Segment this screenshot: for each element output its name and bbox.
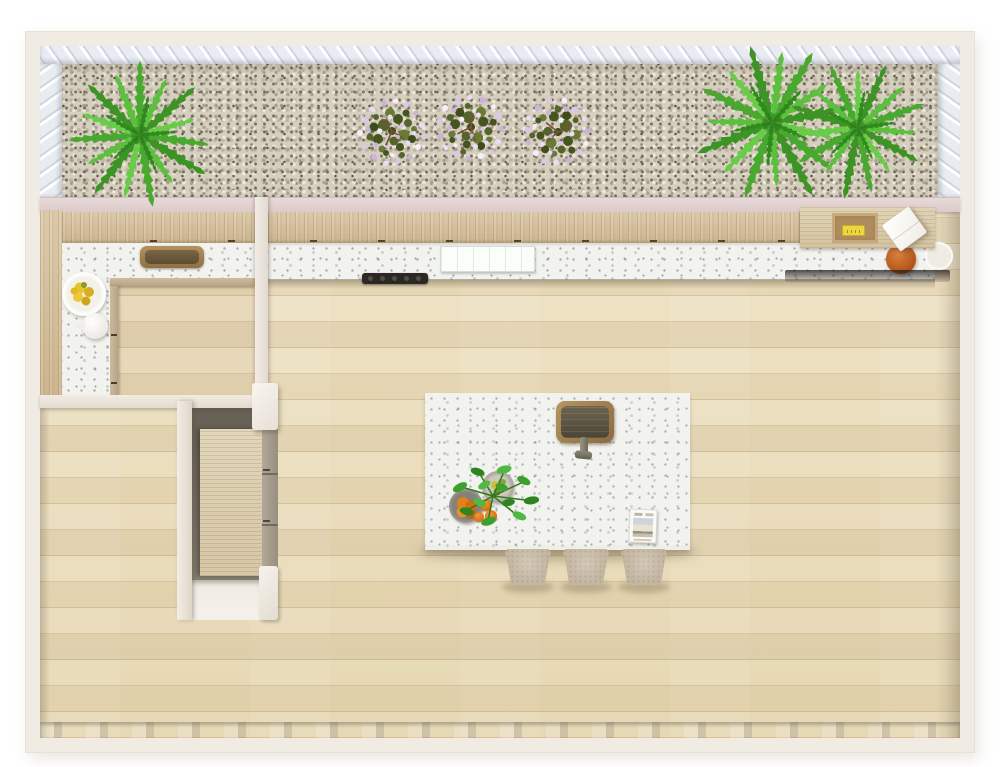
pantry-cabinet-side bbox=[262, 424, 278, 576]
tall-cabinet-left bbox=[40, 210, 62, 396]
cabinet-front-edge bbox=[110, 286, 118, 395]
glass-board bbox=[440, 246, 535, 272]
stool-1 bbox=[505, 549, 551, 585]
flowering-shrub-3 bbox=[508, 82, 608, 182]
cooktop bbox=[362, 273, 428, 284]
stool-3 bbox=[621, 549, 667, 585]
under-desk-shadow bbox=[785, 270, 950, 282]
cabinet-front-edge bbox=[110, 278, 255, 286]
cabinet-handle bbox=[582, 240, 589, 242]
cabinet-handle bbox=[228, 240, 235, 242]
upper-cabinets-main bbox=[268, 212, 800, 243]
lemon-plate bbox=[62, 272, 106, 316]
drawer-handle bbox=[111, 382, 117, 384]
cabinet-handle bbox=[310, 240, 317, 242]
nook-divider-wall bbox=[255, 197, 268, 390]
cabinet-handle bbox=[718, 240, 725, 242]
magazine-title-block bbox=[645, 513, 653, 516]
magazine-cover-image bbox=[633, 518, 654, 538]
wall-pillar bbox=[252, 383, 278, 430]
nook-bottom-wall bbox=[40, 395, 255, 408]
cabinet-handle bbox=[650, 240, 657, 242]
nook-floor bbox=[118, 286, 255, 395]
magazine-title-block bbox=[634, 513, 642, 516]
cabinet-handle bbox=[446, 240, 453, 242]
flowering-shrub-2 bbox=[421, 77, 521, 177]
stool-2 bbox=[563, 549, 609, 585]
lemons bbox=[62, 272, 106, 316]
floor-shadow-right bbox=[936, 212, 960, 738]
fern-plant-left bbox=[55, 50, 225, 220]
yellow-package bbox=[842, 225, 865, 236]
pantry-wall-wing bbox=[259, 566, 278, 620]
island-faucet-base bbox=[575, 450, 593, 460]
cabinet-handle bbox=[778, 240, 785, 242]
gray-floor-strip bbox=[40, 722, 960, 738]
nook-sink bbox=[140, 246, 204, 268]
magazine-caption-line bbox=[633, 539, 651, 542]
drawer-handle bbox=[111, 334, 117, 336]
pantry-left-wall bbox=[177, 401, 192, 620]
fern-plant-right-b bbox=[778, 48, 938, 208]
cabinet-handle bbox=[514, 240, 521, 242]
magazine bbox=[628, 509, 657, 544]
herb-plant bbox=[438, 452, 548, 540]
garden-wall-face-right bbox=[938, 64, 960, 197]
pantry-cabinet bbox=[200, 429, 262, 576]
floor-plan-stage bbox=[0, 0, 1000, 767]
cabinet-handle bbox=[150, 240, 157, 242]
teapot bbox=[82, 313, 108, 339]
cabinet-handle bbox=[378, 240, 385, 242]
